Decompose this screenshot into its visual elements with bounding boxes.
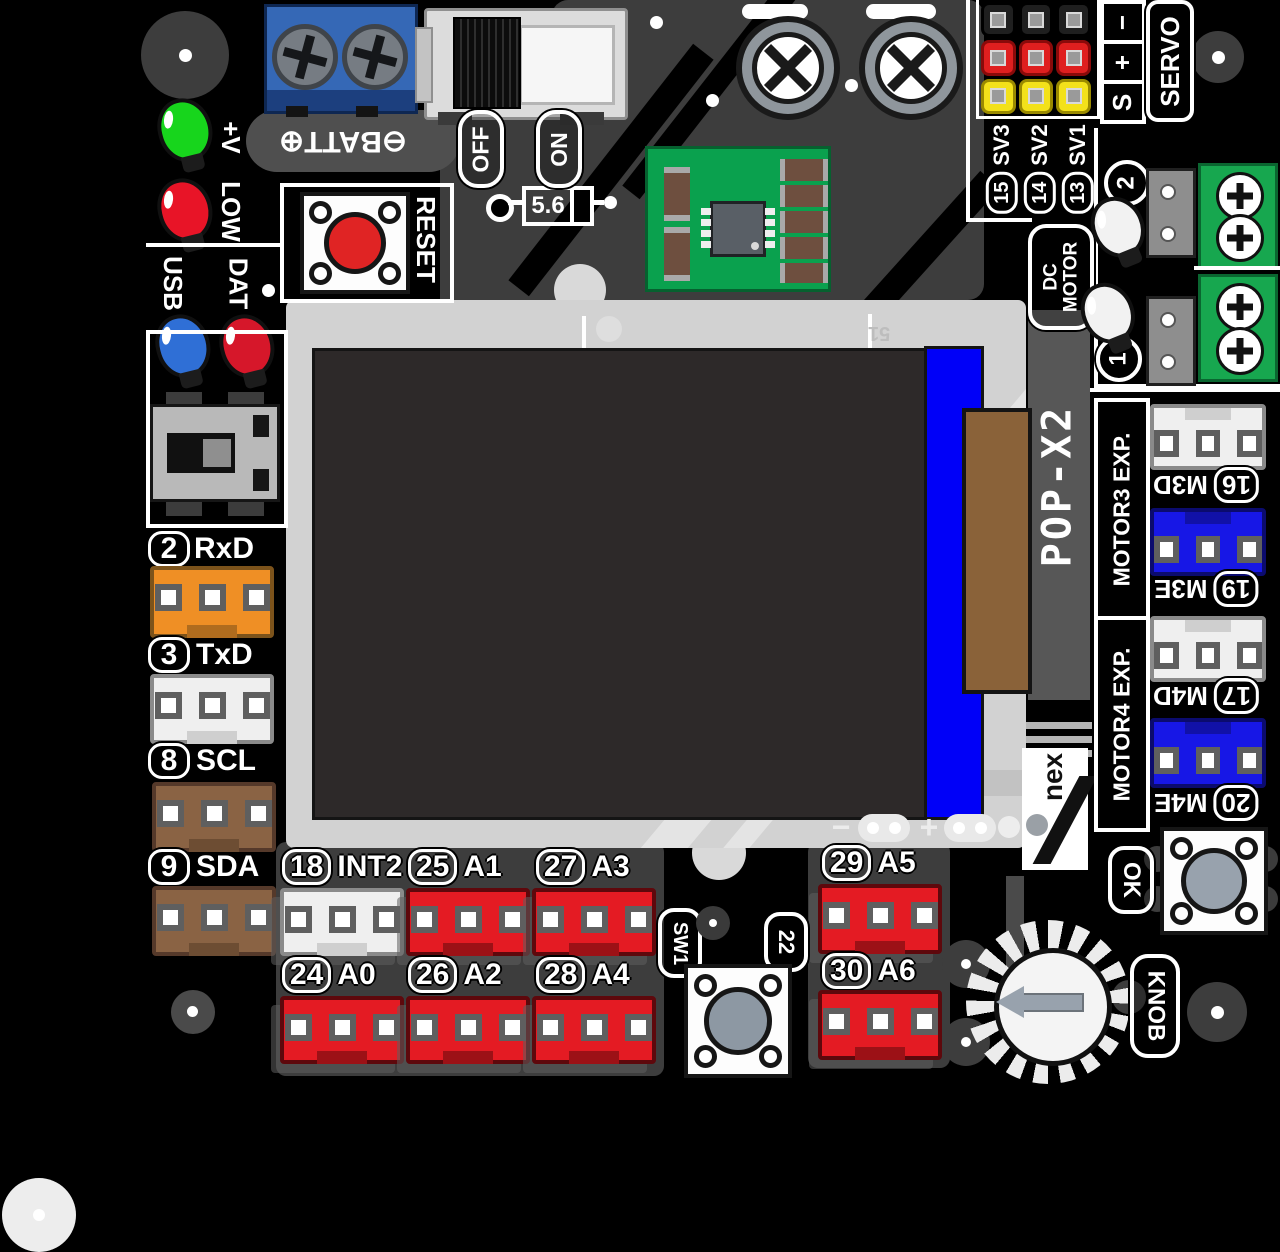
m3d-label: 16M3D [1150, 468, 1262, 502]
terminal-screw[interactable] [272, 24, 338, 90]
via [604, 196, 617, 209]
port-int2-label: 18INT2 [282, 850, 404, 884]
dat-label: DAT [216, 250, 260, 316]
port-a3-label: 27A3 [536, 850, 646, 884]
zener-value: 5.6 [522, 186, 574, 226]
reset-button[interactable] [300, 192, 410, 294]
terminal-screw[interactable] [342, 24, 408, 90]
lcd-screen [312, 348, 932, 820]
motor1-terminal [1198, 274, 1278, 382]
servo-title: SERVO [1146, 0, 1194, 122]
diode-lead [592, 200, 604, 205]
divider [146, 243, 282, 247]
port-a4-label: 28A4 [536, 958, 646, 992]
diode-band [570, 186, 594, 226]
port-sda-label: 9SDA [148, 850, 278, 884]
servo-pin-plus: + [1100, 40, 1146, 84]
usb-tab [228, 502, 264, 516]
motor3-exp-title: MOTOR3 EXP. [1094, 398, 1150, 620]
switch-well [519, 25, 615, 105]
port-scl [152, 782, 276, 852]
port-a6 [818, 990, 942, 1060]
port-a1-label: 25A1 [408, 850, 518, 884]
servo-ch-sv1: 13SV1 [1060, 118, 1096, 220]
frame-pad-capsule [858, 814, 910, 842]
low-label: LOW [208, 174, 252, 248]
terminal-pin [286, 106, 308, 117]
port-a6-label: 30A6 [822, 954, 932, 988]
port-m4d [1150, 616, 1266, 682]
port-sda [152, 886, 276, 956]
smd-cap [664, 227, 690, 281]
smd-cap [780, 185, 828, 207]
via [179, 49, 192, 62]
power-switch[interactable] [424, 8, 628, 120]
frame-mark [582, 316, 586, 352]
outline [1090, 388, 1280, 392]
via [706, 94, 719, 107]
port-a0-label: 24A0 [282, 958, 404, 992]
via [1211, 1006, 1224, 1019]
port-m4e [1150, 718, 1266, 788]
off-label: OFF [458, 110, 504, 188]
via [262, 284, 275, 297]
logo-i-dot [1026, 814, 1048, 836]
via [1212, 51, 1225, 64]
terminal-pin [356, 106, 378, 117]
motor2-connector [1146, 168, 1196, 258]
knob-arrow-icon [992, 986, 1088, 1018]
port-rxd [150, 566, 274, 638]
port-int2 [280, 888, 404, 956]
smd-cap [780, 159, 828, 181]
usb-connector[interactable] [150, 404, 280, 502]
lcd-flex-connector [962, 408, 1032, 694]
usb-tab [166, 502, 202, 516]
reset-label: RESET [406, 190, 444, 288]
sw1-pin-label: 22 [764, 912, 808, 972]
port-scl-label: 8SCL [148, 744, 278, 778]
on-label: ON [536, 110, 582, 188]
port-a5 [818, 884, 942, 954]
port-a5-label: 29A5 [822, 846, 932, 880]
smd-cap [780, 263, 828, 283]
motor4-exp-title: MOTOR4 EXP. [1094, 616, 1150, 832]
pop-x2-board: 51 − + POP-X2 nex [0, 0, 1280, 1252]
servo-pin-grid [981, 2, 1091, 114]
frame-pad [998, 816, 1020, 838]
usb-label: USB [150, 250, 194, 316]
servo-pin-signal: S [1100, 80, 1146, 124]
usb-window [167, 433, 235, 473]
m4e-label: 20M4E [1150, 786, 1262, 820]
frame-plus-mark: + [916, 810, 942, 844]
via [187, 1006, 198, 1017]
port-a2 [406, 996, 530, 1064]
smd-ic [710, 201, 766, 257]
board-name: POP-X2 [1024, 396, 1090, 576]
power-led-label: +V [208, 106, 252, 168]
pad [696, 906, 730, 940]
smd-cap [780, 237, 828, 259]
knob-label: KNOB [1130, 954, 1180, 1058]
via [33, 1209, 45, 1221]
batt-label: ⊖BATT⊕ [258, 118, 428, 164]
frame-minus-mark: − [828, 810, 854, 844]
frame-pad [596, 316, 622, 342]
smd-cap [664, 167, 690, 221]
sw1-button[interactable] [684, 964, 792, 1078]
port-a2-label: 26A2 [408, 958, 518, 992]
ok-button[interactable] [1160, 827, 1268, 935]
port-a1 [406, 888, 530, 956]
diode-pad [486, 194, 514, 222]
servo-ch-sv3: 15SV3 [984, 118, 1020, 220]
switch-knob[interactable] [453, 17, 521, 109]
port-txd [150, 674, 274, 744]
via [650, 16, 663, 29]
port-a3 [532, 888, 656, 956]
smd-cap [780, 211, 828, 233]
outline [1194, 266, 1280, 270]
port-rxd-label: 2RxD [148, 532, 278, 566]
via [845, 79, 858, 92]
port-a0 [280, 996, 404, 1064]
motor1-connector [1146, 296, 1196, 386]
frame-pad-capsule [944, 814, 996, 842]
capacitor [736, 16, 840, 120]
switch-tab [415, 27, 433, 103]
brand-label: nex [1038, 742, 1068, 812]
port-m3e [1150, 508, 1266, 576]
motor2-terminal [1198, 163, 1278, 269]
port-txd-label: 3TxD [148, 638, 278, 672]
ok-label: OK [1108, 846, 1154, 914]
m4d-label: 17M4D [1150, 680, 1262, 712]
port-a4 [532, 996, 656, 1064]
capacitor [859, 16, 963, 120]
servo-pin-minus: − [1100, 0, 1146, 44]
port-m3d [1150, 404, 1266, 470]
servo-ch-sv2: 14SV2 [1022, 118, 1058, 220]
outline [966, 0, 970, 222]
regulator-module [645, 146, 831, 292]
m3e-label: 19M3E [1150, 572, 1262, 606]
